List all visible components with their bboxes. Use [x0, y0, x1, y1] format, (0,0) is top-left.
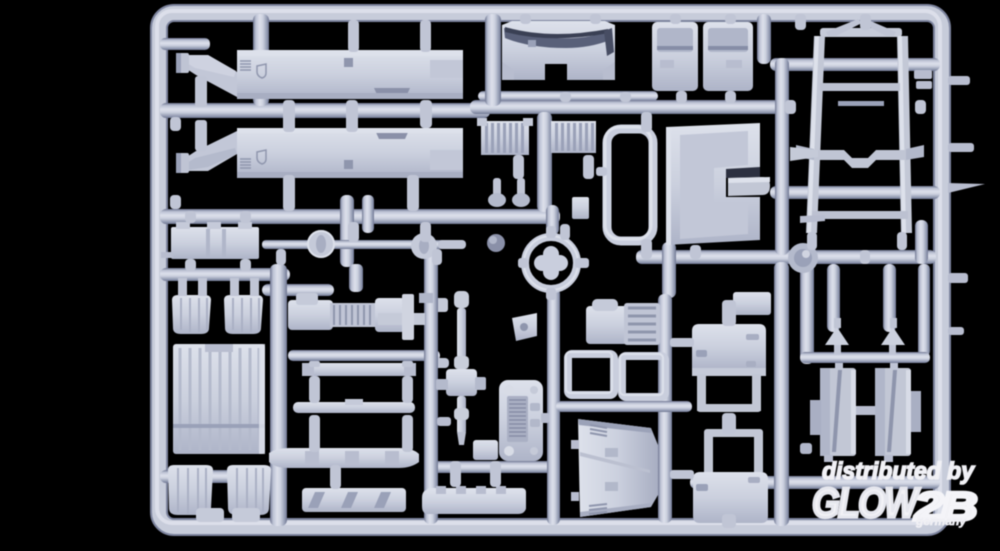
svg-text:GLOW: GLOW: [812, 479, 921, 526]
svg-text:germany: germany: [915, 516, 967, 528]
